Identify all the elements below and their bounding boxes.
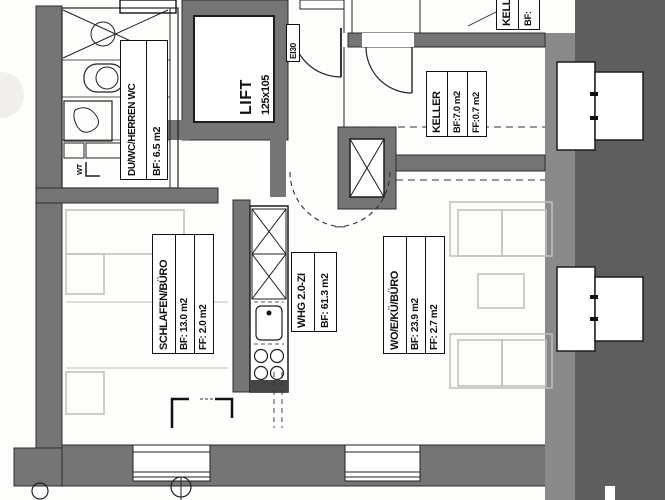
top-protrusion: [120, 0, 176, 13]
hole-punch-mark: [0, 72, 24, 118]
room-floor-area: FF:0.7 m2: [467, 72, 486, 136]
room-name: KELLER: [427, 72, 447, 136]
room-area: BF: 13.0 m2: [175, 235, 194, 353]
lift-dimensions: 125x105: [258, 26, 276, 118]
kitchen-unit: [250, 206, 288, 392]
room-floor-area: FF: 2.0 m2: [194, 235, 213, 353]
floor-plan: DU/WC/HERREN WC BF: 6.5 m2 LIFT 125x105 …: [0, 0, 665, 500]
shower-icon: [91, 22, 115, 46]
room-name: KELL: [497, 0, 518, 29]
fire-door-rating: EI30: [287, 25, 299, 61]
coffee-table: [478, 274, 524, 308]
room-label-living: WO/E/KÜ/BÜRO BF: 23.9 m2 FF: 2.7 m2: [383, 236, 445, 354]
window-bay-lower: [557, 267, 643, 351]
sofa: [450, 202, 552, 256]
room-label-keller: KELLER BF:7.0 m2 FF:0.7 m2: [426, 71, 487, 137]
room-label-bedroom: SCHLAFEN/BÜRO BF: 13.0 m2 FF: 2.0 m2: [152, 234, 214, 354]
room-name: WO/E/KÜ/BÜRO: [384, 237, 406, 353]
window-bay-upper: [557, 62, 643, 150]
room-area: BF:: [518, 0, 540, 29]
room-label-lift: LIFT 125x105: [236, 26, 276, 118]
washbasin-text: WT: [74, 156, 85, 176]
wall-gap: [605, 486, 615, 500]
room-label-keller-partial: KELL BF:: [496, 0, 540, 30]
washbasin-icon: [64, 101, 112, 141]
corner-markers: [172, 399, 232, 428]
room-label-bathroom: DU/WC/HERREN WC BF: 6.5 m2: [120, 40, 168, 180]
room-area: BF: 23.9 m2: [406, 237, 425, 353]
room-name: DU/WC/HERREN WC: [121, 41, 146, 179]
room-floor-area: FF: 2.7 m2: [425, 237, 444, 353]
window-south-left: [133, 445, 210, 500]
keller-door: [366, 47, 412, 93]
fire-door-label: EI30: [286, 24, 300, 62]
room-label-apartment: WHG 2.0-ZI BF: 61.3 m2: [291, 252, 337, 332]
room-area: BF:7.0 m2: [447, 72, 466, 136]
floor-plan-drawing: [0, 0, 665, 500]
apartment-name: WHG 2.0-ZI: [292, 253, 314, 331]
washbasin-label: WT: [74, 156, 85, 176]
keller-door-opening: [362, 33, 414, 47]
sofa: [450, 334, 552, 388]
room-area: BF: 6.5 m2: [146, 41, 167, 179]
top-wall-lines: [300, 0, 344, 9]
window-south-right: [345, 445, 420, 481]
installation-shaft: [350, 139, 384, 197]
apartment-area: BF: 61.3 m2: [314, 253, 337, 331]
room-name: SCHLAFEN/BÜRO: [153, 235, 175, 353]
room-name: LIFT: [236, 26, 258, 118]
